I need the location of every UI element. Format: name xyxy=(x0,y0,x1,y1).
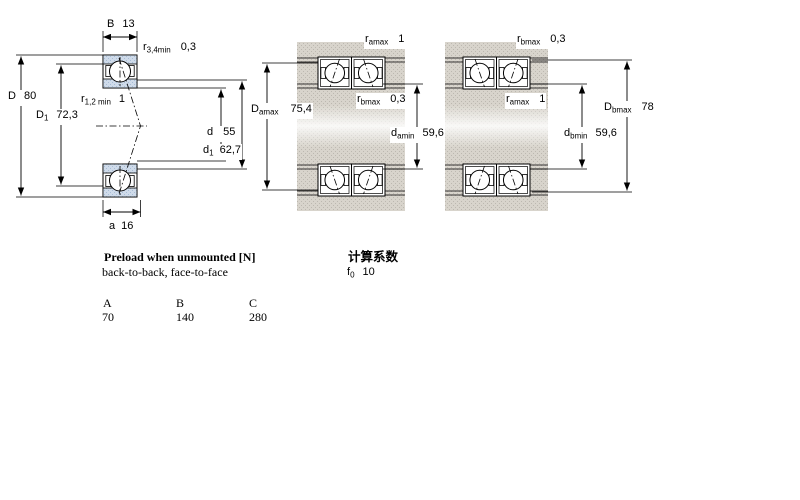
dim-label-r-amax-mid: ramax1 xyxy=(505,93,546,109)
dim-label-d-bmin: dbmin59,6 xyxy=(563,127,618,143)
preload-col-header-a: A xyxy=(103,296,112,310)
f0-factor: f010 xyxy=(347,266,375,280)
preload-subtitle: back-to-back, face-to-face xyxy=(102,265,228,279)
dim-label-r-amax-top: ramax1 xyxy=(364,33,405,49)
dim-label-r34: r3,4min0,3 xyxy=(142,41,197,57)
dim-label-D1: D172,3 xyxy=(35,109,79,125)
dim-label-r-bmax-mid: rbmax0,3 xyxy=(356,93,407,109)
dim-label-d: d55 xyxy=(206,126,236,142)
dim-label-d-amin: damin59,6 xyxy=(390,127,445,143)
calculation-factors-title: 计算系数 xyxy=(348,250,398,264)
preload-col-header-c: C xyxy=(249,296,257,310)
preload-title: Preload when unmounted [N] xyxy=(104,250,255,264)
bearing-dimension-figure: B13 r3,4min0,3 D80 D172,3 r1,2 min1 d55 … xyxy=(0,0,800,500)
dim-label-r-bmax-top: rbmax0,3 xyxy=(516,33,567,49)
dim-label-r12: r1,2 min1 xyxy=(80,93,126,109)
dim-label-a: a16 xyxy=(108,220,134,236)
dim-label-D: D80 xyxy=(7,90,37,106)
dim-label-d1: d162,7 xyxy=(202,144,242,160)
preload-value-c: 280 xyxy=(249,310,267,324)
preload-value-b: 140 xyxy=(176,310,194,324)
dim-label-B: B13 xyxy=(106,18,136,34)
dim-label-D-amax: Damax75,4 xyxy=(250,103,313,119)
dim-label-D-bmax: Dbmax78 xyxy=(603,101,655,117)
preload-value-a: 70 xyxy=(102,310,114,324)
preload-col-header-b: B xyxy=(176,296,184,310)
